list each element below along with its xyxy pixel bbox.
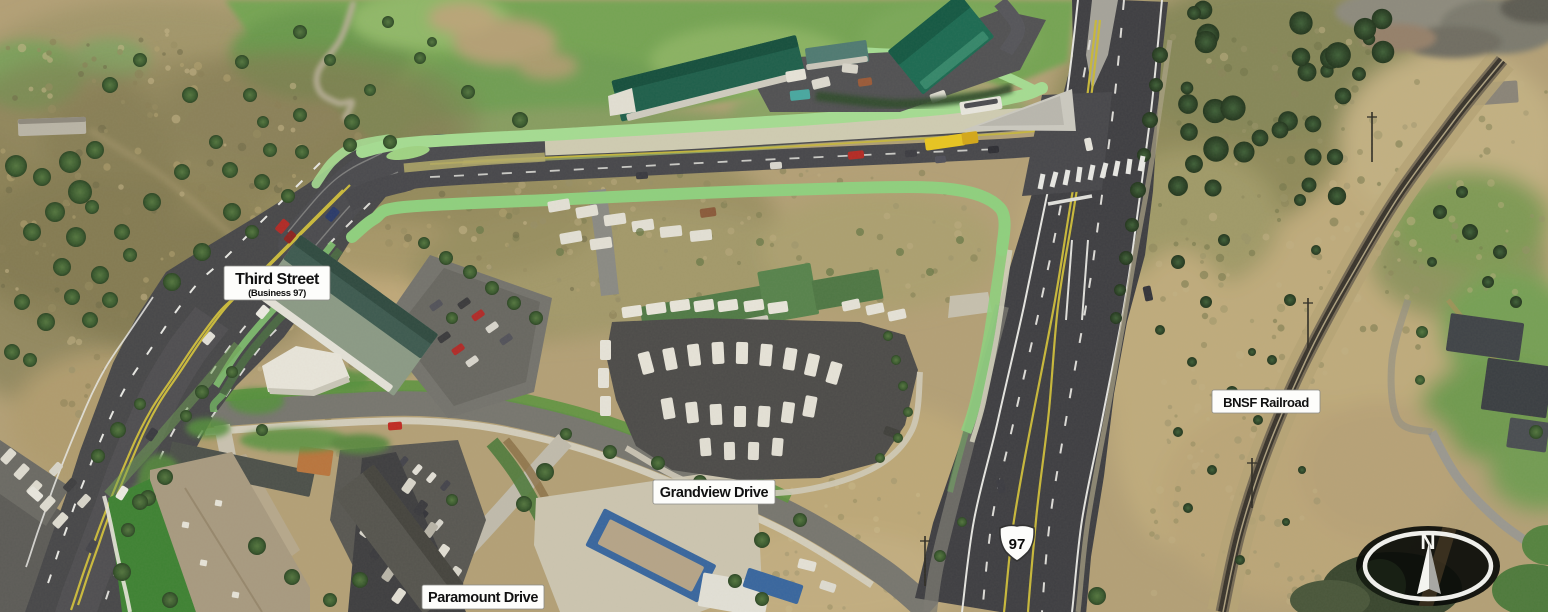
svg-text:Paramount Drive: Paramount Drive [428,590,538,606]
svg-text:97: 97 [1009,536,1026,553]
svg-text:(Business 97): (Business 97) [248,288,306,299]
svg-text:BNSF Railroad: BNSF Railroad [1223,395,1309,410]
svg-text:Grandview Drive: Grandview Drive [660,485,769,501]
svg-text:Third Street: Third Street [235,271,320,288]
